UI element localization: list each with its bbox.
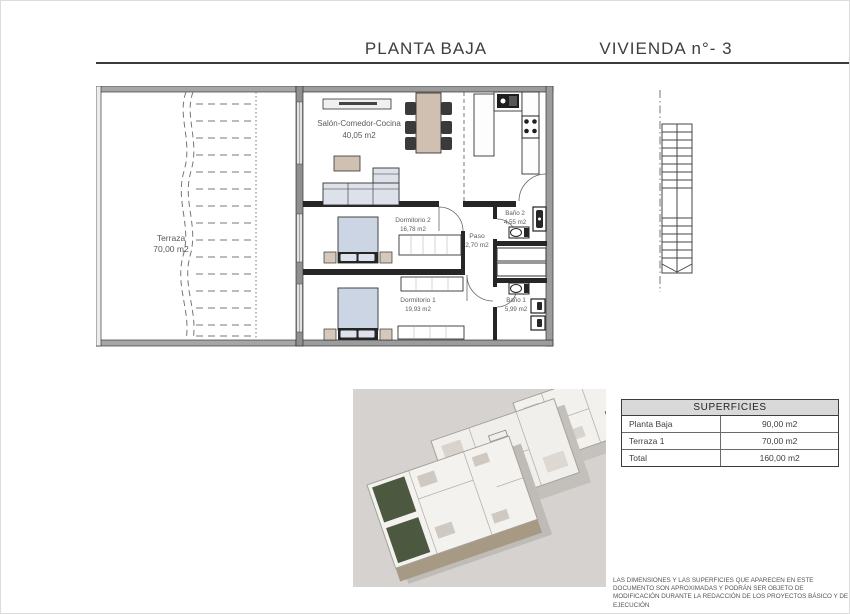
dining-table: [405, 93, 452, 153]
stove-icon: [522, 116, 539, 138]
room-label-dormitorio1: Dormitorio 1: [400, 297, 436, 304]
sink-icon: [497, 94, 519, 108]
toilet-icon: [509, 283, 529, 294]
room-area-paso: 2,70 m2: [465, 242, 489, 249]
row-value: 70,00 m2: [721, 436, 838, 446]
row-value: 90,00 m2: [721, 419, 838, 429]
terraza-walls: [96, 86, 296, 346]
bed-dormitorio2: [324, 217, 392, 263]
toilet-icon: [509, 227, 529, 238]
row-label: Terraza 1: [622, 433, 721, 449]
disclaimer-text: LAS DIMENSIONES Y LAS SUPERFICIES QUE AP…: [613, 577, 849, 610]
storage-units: [497, 248, 546, 276]
room-area-dormitorio2: 16,78 m2: [400, 226, 426, 233]
room-label-terraza: Terraza: [157, 233, 186, 243]
superficies-table-header: SUPERFICIES: [622, 400, 838, 416]
floor-plan: Terraza 70,00 m2: [96, 86, 556, 348]
page-title: PLANTA BAJA: [331, 39, 521, 59]
bed-dormitorio1: [324, 288, 392, 340]
plan-sheet: PLANTA BAJA VIVIENDA n°- 3 Terraza 70,00…: [0, 0, 850, 614]
row-value: 160,00 m2: [721, 453, 838, 463]
shower-icon: [533, 207, 546, 231]
building-3d-render: [353, 389, 606, 587]
room-label-salon: Salón-Comedor-Cocina: [317, 119, 401, 128]
room-area-bano2: 4,55 m2: [504, 219, 527, 226]
dwelling-title: VIVIENDA n°- 3: [571, 39, 761, 59]
terraza-hatch: [181, 92, 256, 340]
room-area-dormitorio1: 19,93 m2: [405, 306, 431, 313]
row-label: Total: [622, 450, 721, 466]
row-label: Planta Baja: [622, 416, 721, 432]
table-row: Terraza 1 70,00 m2: [622, 432, 838, 449]
room-area-bano1: 5,99 m2: [505, 306, 528, 313]
room-area-salon: 40,05 m2: [342, 131, 376, 140]
room-label-paso: Paso: [469, 233, 485, 240]
table-row: Planta Baja 90,00 m2: [622, 416, 838, 432]
superficies-table: SUPERFICIES Planta Baja 90,00 m2 Terraza…: [621, 399, 839, 467]
room-label-bano1: Baño 1: [506, 297, 526, 304]
tv-sideboard: [323, 99, 391, 109]
sofa: [323, 168, 399, 205]
coffee-table: [334, 156, 360, 171]
room-area-terraza: 70,00 m2: [153, 244, 189, 254]
wardrobe-dormitorio2: [399, 235, 461, 255]
room-label-dormitorio2: Dormitorio 2: [395, 217, 431, 224]
room-label-bano2: Baño 2: [505, 210, 525, 217]
header-divider: [96, 62, 849, 64]
window-icon: [297, 102, 303, 332]
shower-icon: [531, 299, 545, 330]
stairs-diagram: [646, 86, 716, 296]
table-row: Total 160,00 m2: [622, 449, 838, 466]
